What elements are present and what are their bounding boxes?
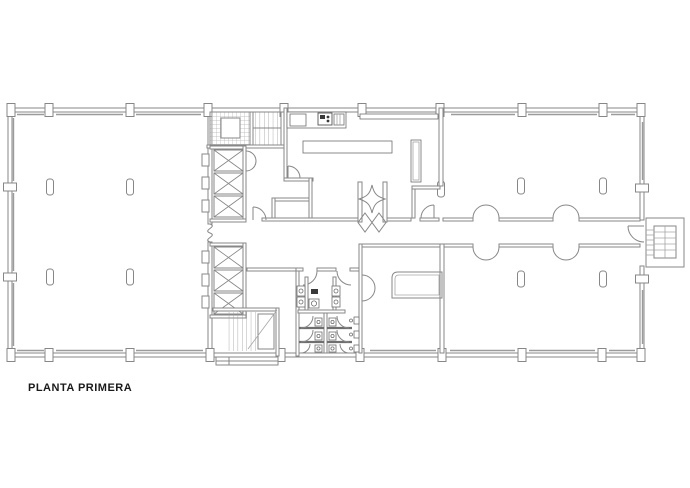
entry-steps-south bbox=[216, 357, 278, 365]
elevator-bank-lower bbox=[202, 243, 246, 318]
service-counter bbox=[392, 272, 442, 298]
door-swing bbox=[421, 205, 434, 218]
window-sill bbox=[360, 114, 438, 119]
elevator-door-swing bbox=[246, 151, 256, 171]
room-dividers bbox=[439, 108, 444, 353]
double-door-swing bbox=[473, 205, 499, 218]
store-room bbox=[412, 186, 440, 218]
double-door-swing bbox=[553, 205, 579, 218]
wall-mounted-units bbox=[350, 317, 360, 352]
elevator-shaft bbox=[214, 247, 243, 268]
double-door-swing bbox=[553, 247, 579, 260]
duct-shaft bbox=[411, 140, 421, 182]
plan-title: PLANTA PRIMERA bbox=[28, 382, 132, 394]
door-swing bbox=[628, 226, 644, 242]
break-line-squiggle bbox=[208, 224, 213, 242]
sink bbox=[334, 114, 344, 125]
stairwell-north bbox=[207, 112, 284, 148]
elevator-shaft bbox=[214, 270, 243, 291]
door-swing bbox=[337, 271, 351, 285]
floor-plan-page: PLANTA PRIMERA bbox=[0, 0, 690, 488]
stall-door-swings bbox=[337, 316, 349, 353]
double-swing-door bbox=[362, 275, 375, 301]
double-door-swing bbox=[473, 247, 499, 260]
vestibule-doors bbox=[358, 182, 387, 232]
washroom-fixtures bbox=[297, 286, 340, 308]
door-swing bbox=[288, 166, 300, 178]
double-door-star bbox=[359, 185, 385, 213]
external-stair-east bbox=[646, 218, 684, 267]
stall-door-swings bbox=[301, 316, 313, 353]
floor-plan-canvas: PLANTA PRIMERA bbox=[0, 0, 690, 488]
long-table bbox=[303, 141, 392, 153]
elevator-shaft bbox=[214, 173, 243, 194]
elevator-shaft bbox=[214, 196, 243, 217]
toilet-block bbox=[296, 244, 362, 356]
elevator-shaft bbox=[214, 150, 243, 171]
